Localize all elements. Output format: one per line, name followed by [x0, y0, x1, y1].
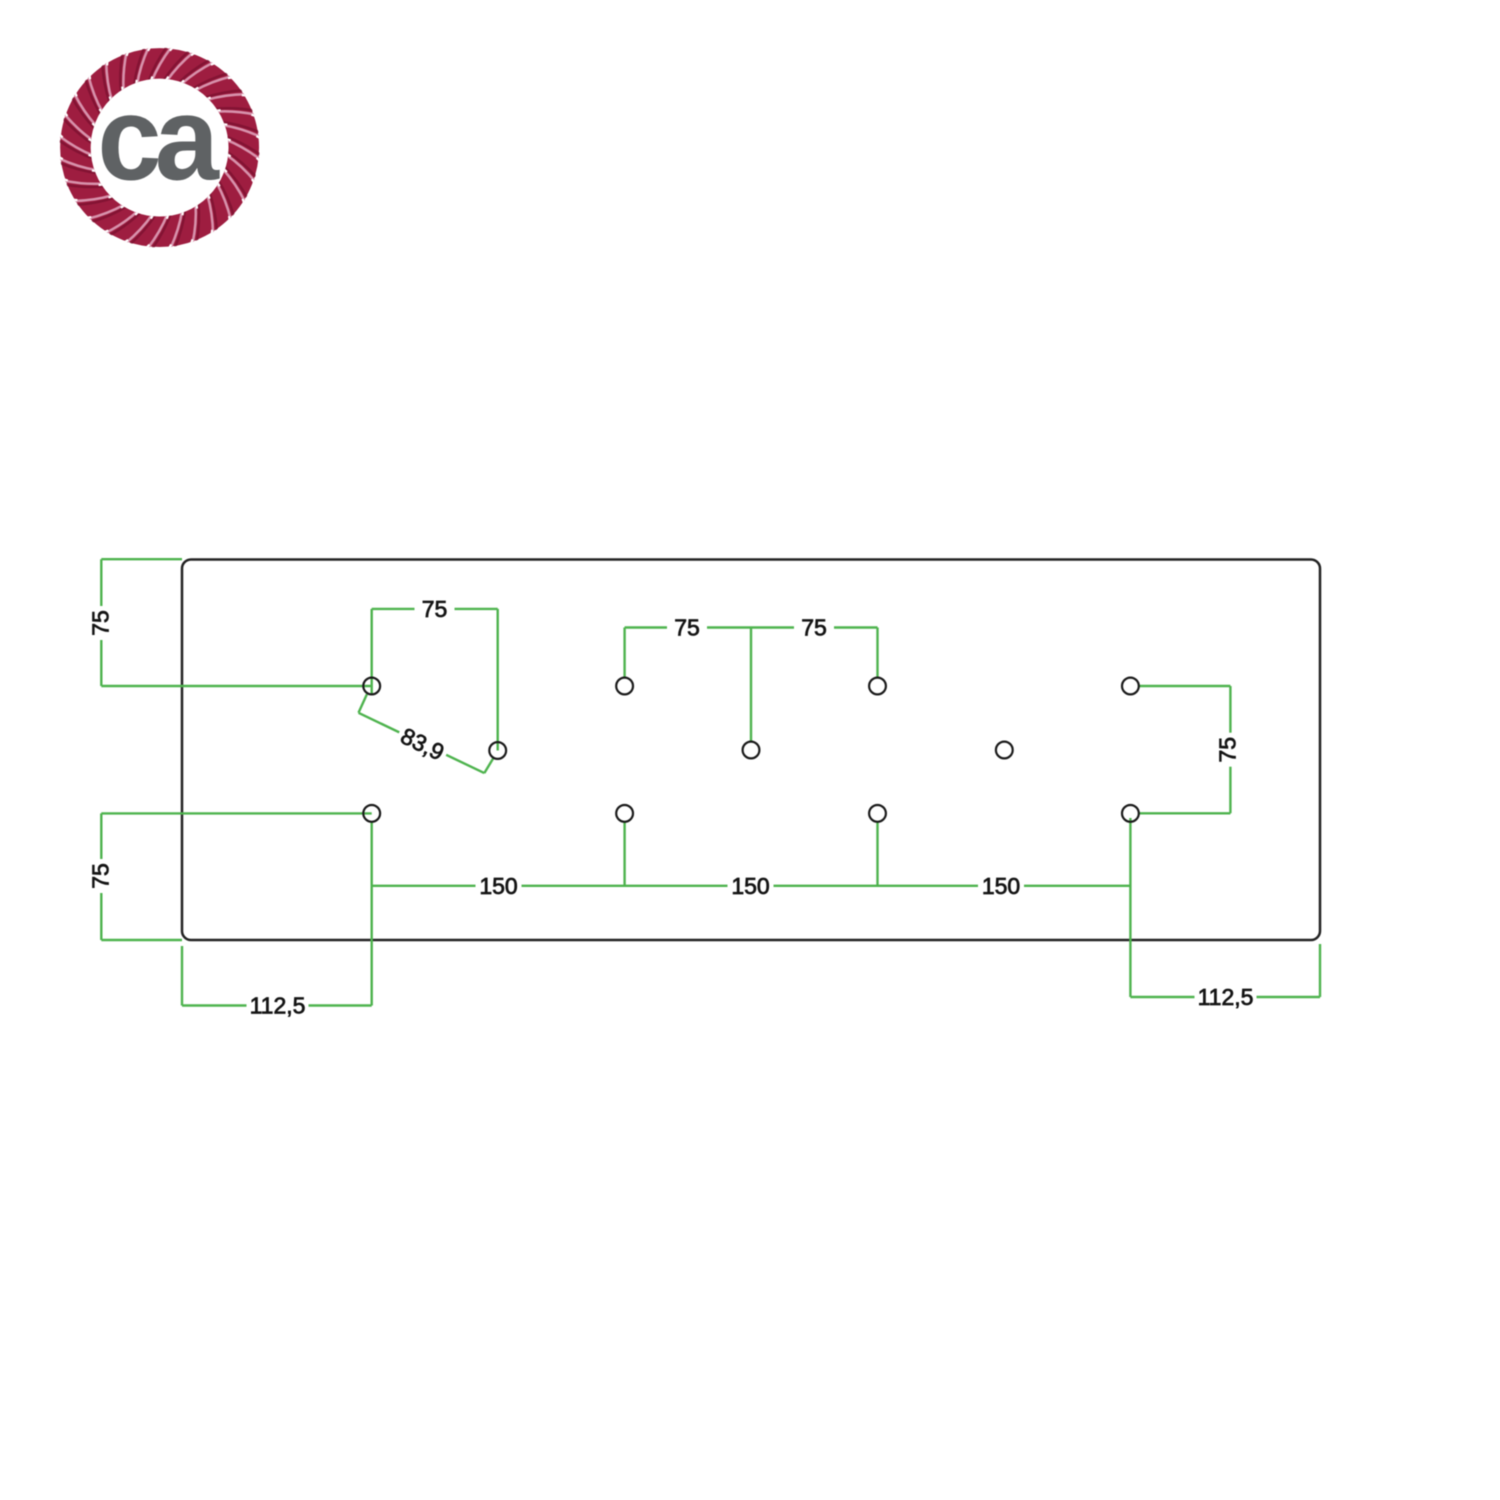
svg-text:75: 75 — [801, 615, 827, 641]
svg-text:75: 75 — [1215, 737, 1241, 763]
svg-text:150: 150 — [731, 873, 769, 899]
svg-text:75: 75 — [87, 863, 113, 889]
svg-text:75: 75 — [674, 615, 700, 641]
svg-text:112,5: 112,5 — [1198, 984, 1254, 1010]
svg-text:75: 75 — [87, 610, 113, 636]
svg-text:112,5: 112,5 — [250, 993, 306, 1019]
svg-text:ca: ca — [97, 72, 219, 205]
svg-text:75: 75 — [422, 596, 448, 622]
svg-text:150: 150 — [479, 873, 517, 899]
svg-text:150: 150 — [982, 873, 1020, 899]
